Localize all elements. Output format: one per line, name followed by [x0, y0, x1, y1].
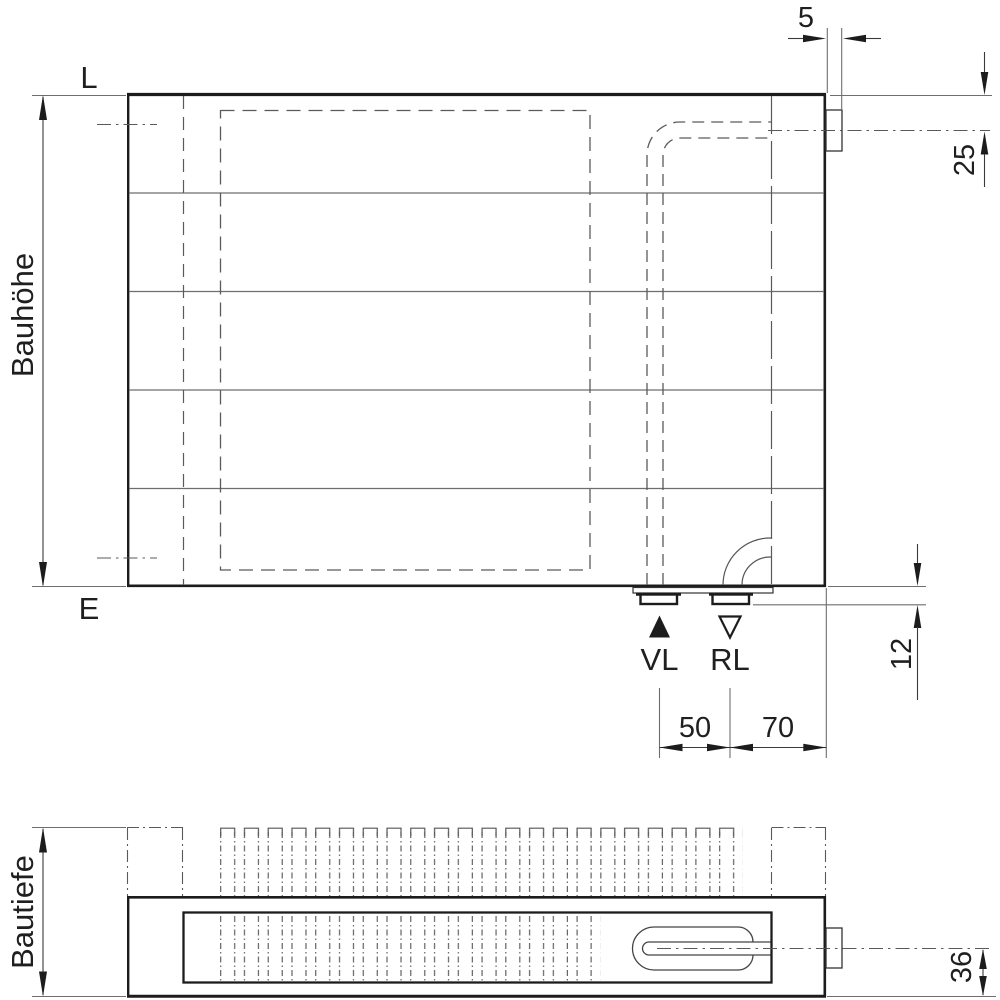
arrow-right-icon: [803, 35, 826, 42]
rl-connection-stub: [713, 595, 750, 605]
connection-centerlines: [97, 125, 990, 559]
dim-50-value: 50: [679, 712, 711, 744]
arrow-up-icon: [914, 605, 922, 628]
panel-seam-lines: [129, 193, 824, 489]
rl-label: RL: [710, 642, 750, 677]
arrow-right-icon: [803, 744, 826, 751]
dim-bauhoehe: Bauhöhe: [5, 95, 126, 587]
dim-12: 12: [753, 544, 926, 700]
dim-25-value: 25: [949, 144, 981, 176]
convector-fins-inner: [220, 916, 600, 981]
arrow-left-icon: [660, 744, 683, 751]
drawing-canvas: VL RL Bauhöhe L E 5: [0, 0, 1000, 1000]
convector-hidden-outline: [221, 111, 591, 571]
connection-plate: [633, 588, 773, 594]
arrow-up-icon: [981, 132, 989, 155]
dim-bautiefe: Bautiefe: [5, 828, 126, 997]
dim-36-value: 36: [946, 951, 978, 983]
vl-connection-stub: [641, 595, 678, 605]
dim-5-value: 5: [798, 2, 814, 34]
dim-12-value: 12: [886, 638, 918, 670]
dim-25: 25: [830, 52, 992, 187]
arrow-down-icon: [914, 563, 922, 586]
return-pipe-elbow: [723, 538, 772, 585]
arrow-down-icon: [981, 72, 989, 95]
plan-view: Bautiefe 36: [5, 827, 996, 997]
label-e: E: [79, 591, 100, 626]
flow-pipe-hidden: [647, 122, 771, 585]
label-l: L: [80, 60, 97, 95]
radiator-technical-drawing: VL RL Bauhöhe L E 5: [0, 0, 1000, 1000]
arrow-up-icon: [979, 949, 987, 969]
arrow-down-icon: [979, 976, 987, 996]
bracket-centerlines-right: [772, 828, 827, 897]
dim-36: 36: [827, 949, 996, 997]
arrow-down-icon: [39, 562, 47, 587]
arrow-up-icon: [39, 828, 47, 853]
arrow-left-icon: [730, 744, 753, 751]
arrow-down-icon: [39, 972, 47, 997]
return-triangle-icon: [720, 617, 741, 638]
arrow-left-icon: [843, 35, 866, 42]
arrow-right-icon: [707, 744, 730, 751]
bracket-centerlines-left: [127, 828, 183, 897]
flow-triangle-icon: [649, 616, 670, 638]
radiator-body-outline: [127, 94, 826, 588]
arrow-up-icon: [39, 95, 47, 120]
bauhoehe-label: Bauhöhe: [5, 253, 40, 377]
bautiefe-label: Bautiefe: [5, 855, 40, 969]
vl-label: VL: [641, 642, 679, 677]
convector-fins-top: [220, 827, 743, 898]
bottom-connection-block: [633, 588, 773, 605]
front-view: VL RL Bauhöhe L E 5: [5, 2, 992, 758]
dim-70-value: 70: [762, 712, 794, 744]
